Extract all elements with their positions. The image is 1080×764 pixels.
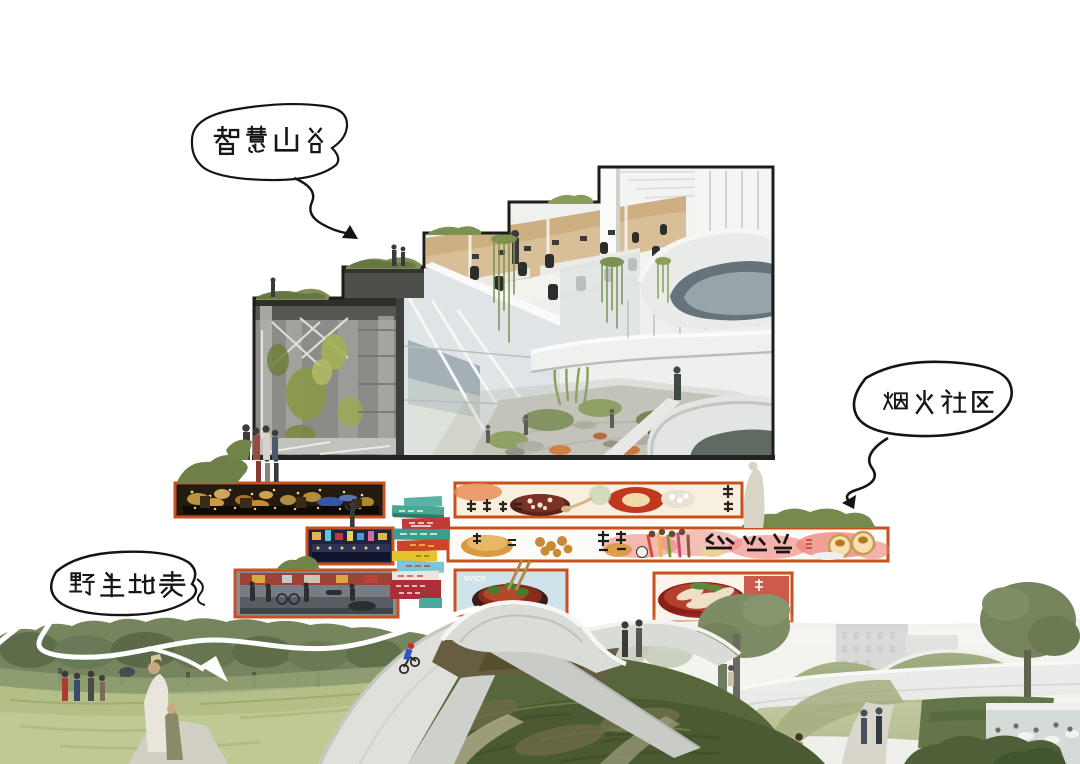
svg-text:NYICS: NYICS xyxy=(464,576,486,583)
